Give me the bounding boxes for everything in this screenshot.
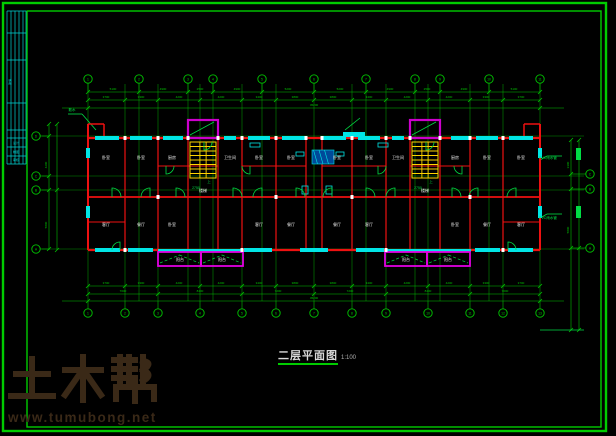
svg-text:4200: 4200 — [176, 281, 183, 285]
svg-text:11: 11 — [538, 77, 542, 81]
svg-text:楼梯: 楼梯 — [199, 187, 207, 193]
svg-text:3300: 3300 — [138, 281, 145, 285]
svg-text:卧室: 卧室 — [102, 154, 110, 160]
svg-text:3300: 3300 — [483, 95, 490, 99]
svg-text:PVC雨水管: PVC雨水管 — [539, 155, 557, 160]
svg-text:厨房: 厨房 — [451, 154, 459, 160]
svg-text:7000: 7000 — [502, 289, 509, 293]
cad-canvas[interactable]: 设计制图审核建施51004900250049005200520049002500… — [0, 0, 616, 436]
svg-text:11: 11 — [468, 311, 472, 315]
svg-text:8400: 8400 — [425, 289, 432, 293]
svg-text:5: 5 — [261, 77, 263, 81]
svg-text:4200: 4200 — [446, 95, 453, 99]
svg-text:2750: 2750 — [192, 186, 200, 190]
drawing-title-text: 二层平面图 — [278, 350, 338, 365]
svg-text:3800: 3800 — [292, 281, 299, 285]
svg-text:建施: 建施 — [7, 79, 12, 85]
svg-text:2: 2 — [138, 77, 140, 81]
svg-text:客厅: 客厅 — [255, 221, 263, 227]
svg-text:7200: 7200 — [347, 289, 354, 293]
svg-text:5800: 5800 — [566, 226, 570, 233]
svg-text:客厅: 客厅 — [517, 221, 525, 227]
svg-text:餐厅: 餐厅 — [287, 221, 295, 227]
svg-text:上: 上 — [429, 179, 433, 184]
svg-text:设计: 设计 — [13, 140, 19, 145]
svg-text:10: 10 — [426, 311, 430, 315]
svg-text:阳台: 阳台 — [444, 256, 452, 262]
svg-text:7200: 7200 — [275, 289, 282, 293]
svg-text:3400: 3400 — [366, 281, 373, 285]
svg-text:3800: 3800 — [292, 95, 299, 99]
svg-text:10: 10 — [487, 77, 491, 81]
svg-text:卧室: 卧室 — [451, 221, 459, 227]
svg-text:1: 1 — [87, 311, 89, 315]
svg-text:3700: 3700 — [518, 281, 525, 285]
svg-text:阳台: 阳台 — [218, 256, 226, 262]
watermark-logo — [8, 354, 160, 404]
svg-text:3300: 3300 — [138, 95, 145, 99]
svg-text:2750: 2750 — [414, 186, 422, 190]
svg-text:4900: 4900 — [461, 87, 468, 91]
svg-text:PVC雨水管: PVC雨水管 — [539, 215, 557, 220]
svg-text:3800: 3800 — [330, 281, 337, 285]
svg-text:5200: 5200 — [285, 87, 292, 91]
drawing-title: 二层平面图1:100 — [278, 346, 356, 364]
axis-bubbles: 123456789101112345678910111213DCBACBA — [32, 75, 594, 317]
svg-text:3300: 3300 — [566, 161, 570, 168]
svg-text:4900: 4900 — [234, 87, 241, 91]
svg-text:7000: 7000 — [120, 289, 127, 293]
svg-text:4900: 4900 — [387, 87, 394, 91]
svg-text:3700: 3700 — [103, 95, 110, 99]
svg-text:5: 5 — [241, 311, 243, 315]
svg-text:卫生间: 卫生间 — [224, 154, 236, 160]
watermark-logo-glyphs — [11, 357, 154, 403]
svg-text:3300: 3300 — [483, 281, 490, 285]
svg-text:餐厅: 餐厅 — [483, 221, 491, 227]
svg-text:9: 9 — [439, 77, 441, 81]
svg-text:5100: 5100 — [511, 87, 518, 91]
watermark-url: www.tumubong.net — [8, 410, 160, 425]
svg-text:卧室: 卧室 — [483, 154, 491, 160]
hatch-block — [250, 143, 388, 194]
svg-text:4200: 4200 — [44, 161, 48, 168]
svg-text:5800: 5800 — [44, 221, 48, 228]
svg-text:阳台: 阳台 — [176, 256, 184, 262]
svg-text:4: 4 — [212, 77, 214, 81]
svg-text:上: 上 — [207, 179, 211, 184]
svg-text:厨房: 厨房 — [168, 154, 176, 160]
svg-text:餐厅: 餐厅 — [137, 221, 145, 227]
svg-text:5100: 5100 — [110, 87, 117, 91]
svg-text:6: 6 — [313, 77, 315, 81]
svg-text:卧室: 卧室 — [517, 154, 525, 160]
title-block: 设计制图审核建施 — [7, 11, 26, 164]
svg-text:审核: 审核 — [13, 157, 19, 162]
svg-text:3700: 3700 — [518, 95, 525, 99]
svg-text:3: 3 — [157, 311, 159, 315]
svg-text:4200: 4200 — [446, 281, 453, 285]
svg-text:散水: 散水 — [69, 107, 76, 112]
svg-text:4200: 4200 — [404, 281, 411, 285]
svg-text:4200: 4200 — [404, 95, 411, 99]
svg-text:8400: 8400 — [197, 289, 204, 293]
svg-text:3400: 3400 — [256, 281, 263, 285]
svg-text:卧室: 卧室 — [365, 154, 373, 160]
svg-text:客厅: 客厅 — [102, 221, 110, 227]
svg-text:卧室: 卧室 — [333, 154, 341, 160]
svg-text:9: 9 — [385, 311, 387, 315]
svg-text:4: 4 — [199, 311, 201, 315]
svg-text:4900: 4900 — [160, 87, 167, 91]
svg-text:2500: 2500 — [197, 87, 204, 91]
svg-text:卧室: 卧室 — [168, 221, 176, 227]
svg-text:7: 7 — [365, 77, 367, 81]
svg-text:3: 3 — [187, 77, 189, 81]
svg-text:3700: 3700 — [103, 281, 110, 285]
svg-text:4200: 4200 — [218, 281, 225, 285]
svg-text:7: 7 — [313, 311, 315, 315]
svg-text:12: 12 — [501, 311, 505, 315]
svg-text:45200: 45200 — [310, 103, 319, 107]
svg-text:45200: 45200 — [310, 296, 319, 300]
watermark: www.tumubong.net — [8, 354, 160, 425]
svg-text:6: 6 — [275, 311, 277, 315]
svg-text:3400: 3400 — [256, 95, 263, 99]
drawing-scale: 1:100 — [341, 355, 356, 361]
svg-text:楼梯: 楼梯 — [421, 187, 429, 193]
svg-text:3400: 3400 — [366, 95, 373, 99]
svg-text:2: 2 — [124, 311, 126, 315]
svg-text:8: 8 — [351, 311, 353, 315]
svg-text:制图: 制图 — [13, 149, 19, 154]
svg-text:4200: 4200 — [218, 95, 225, 99]
room-labels: 卧室卧室厨房卫生间卧室卧室卧室卧室卫生间厨房卧室卧室客厅餐厅卧室客厅餐厅餐厅客厅… — [69, 107, 558, 262]
svg-text:卧室: 卧室 — [255, 154, 263, 160]
svg-text:1: 1 — [87, 77, 89, 81]
svg-text:卫生间: 卫生间 — [392, 154, 404, 160]
svg-text:卧室: 卧室 — [137, 154, 145, 160]
svg-text:卧室: 卧室 — [287, 154, 295, 160]
svg-text:3800: 3800 — [330, 95, 337, 99]
svg-text:4200: 4200 — [176, 95, 183, 99]
svg-text:5200: 5200 — [337, 87, 344, 91]
svg-text:阳台: 阳台 — [402, 256, 410, 262]
svg-text:客厅: 客厅 — [365, 221, 373, 227]
svg-text:13: 13 — [538, 311, 542, 315]
svg-text:8: 8 — [414, 77, 416, 81]
svg-text:2500: 2500 — [424, 87, 431, 91]
svg-text:餐厅: 餐厅 — [333, 221, 341, 227]
